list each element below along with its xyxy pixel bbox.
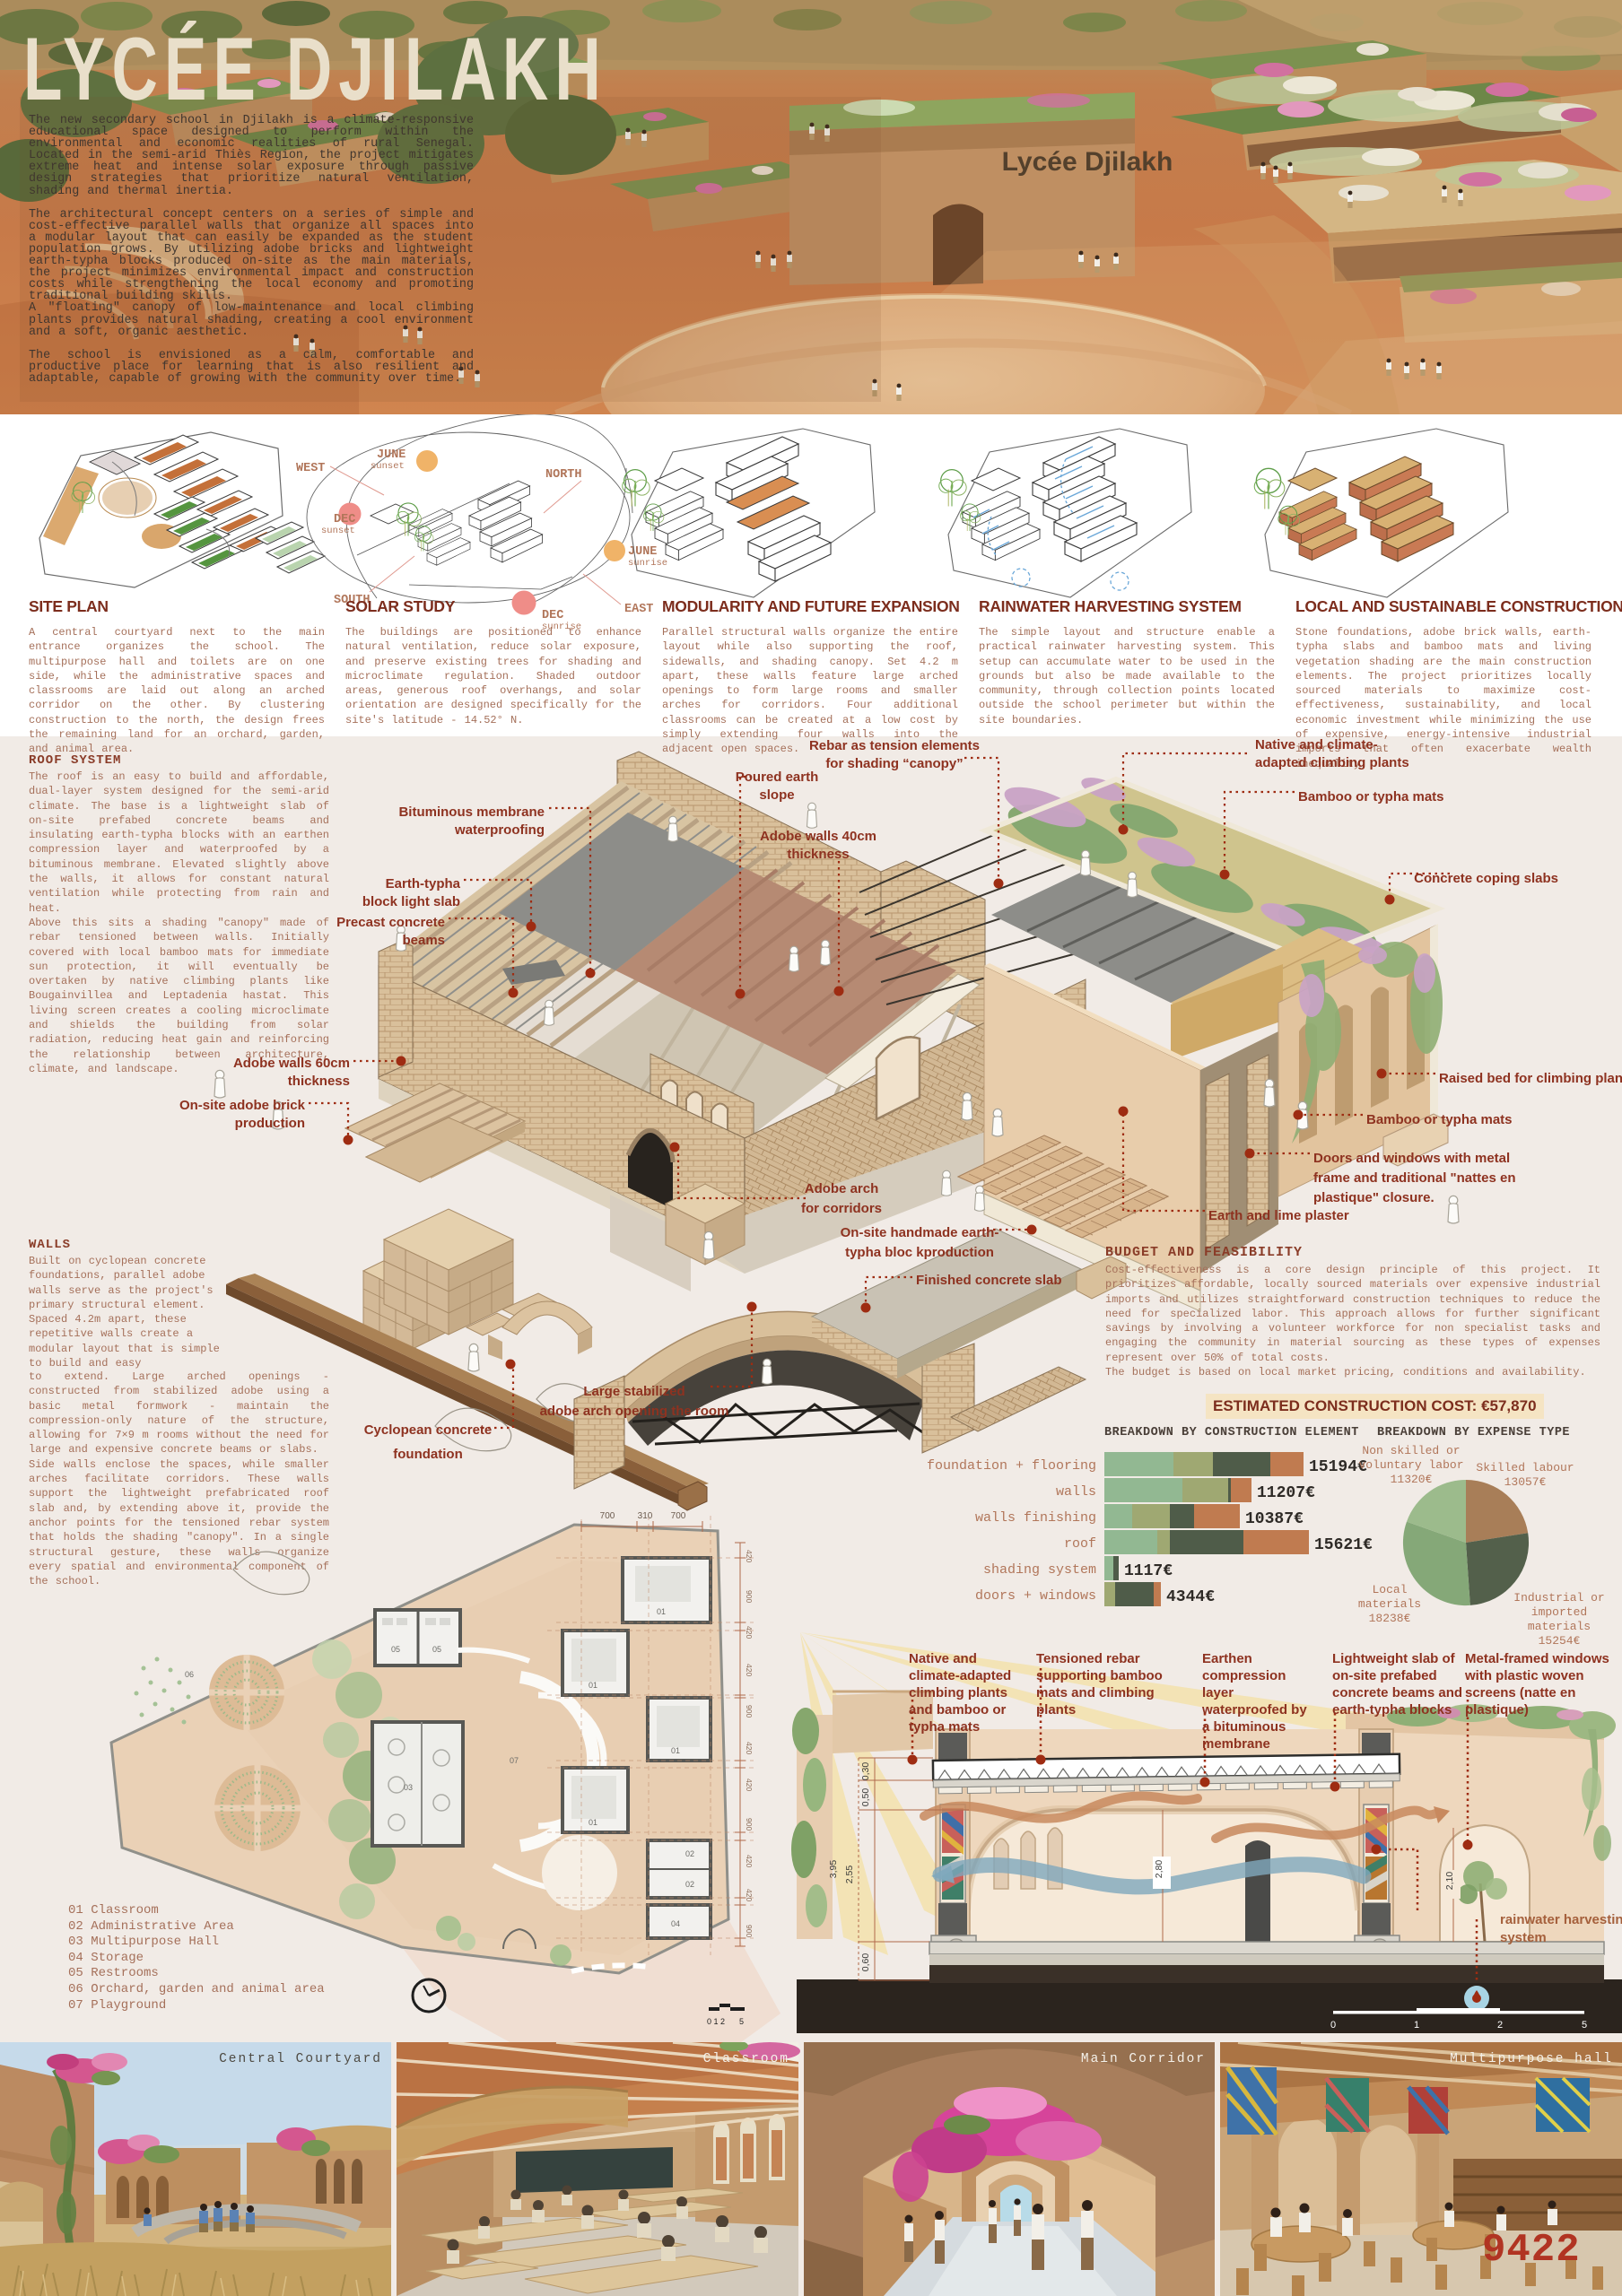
svg-text:03: 03 (404, 1783, 413, 1792)
svg-text:Poured earth: Poured earth (736, 770, 819, 785)
svg-text:NORTH: NORTH (545, 468, 582, 482)
svg-text:Lycée Djilakh: Lycée Djilakh (1002, 147, 1173, 177)
svg-text:WEST: WEST (296, 462, 325, 475)
svg-text:5: 5 (739, 2017, 744, 2026)
svg-text:thickness: thickness (288, 1074, 350, 1089)
svg-text:adobe arch opening the room: adobe arch opening the room (540, 1404, 729, 1419)
svg-text:420: 420 (745, 1626, 754, 1639)
svg-text:2,55: 2,55 (844, 1865, 855, 1884)
svg-text:0 1 2: 0 1 2 (707, 2017, 725, 2026)
svg-text:adapted climbing plants: adapted climbing plants (1255, 755, 1409, 770)
svg-text:sunset: sunset (321, 526, 355, 536)
svg-text:05: 05 (432, 1645, 441, 1654)
svg-text:Raised bed for climbing plants: Raised bed for climbing plants (1439, 1071, 1622, 1086)
svg-text:JUNE: JUNE (628, 545, 657, 559)
svg-text:420: 420 (745, 1664, 754, 1676)
svg-text:01: 01 (671, 1746, 680, 1755)
svg-text:EAST: EAST (624, 603, 653, 616)
svg-text:sunrise: sunrise (628, 558, 667, 569)
svg-text:waterproofing: waterproofing (454, 822, 545, 838)
svg-text:Cyclopean concrete: Cyclopean concrete (364, 1422, 493, 1438)
svg-text:04: 04 (671, 1919, 680, 1928)
svg-text:900: 900 (745, 1705, 754, 1718)
svg-text:Bituminous membrane: Bituminous membrane (398, 804, 545, 820)
svg-text:06: 06 (185, 1670, 194, 1679)
svg-text:900: 900 (745, 1590, 754, 1603)
svg-text:3,95: 3,95 (828, 1860, 839, 1879)
svg-text:Multipurpose hall: Multipurpose hall (1450, 2052, 1613, 2066)
svg-text:2: 2 (1497, 2020, 1503, 2031)
svg-text:beams: beams (402, 933, 445, 948)
svg-text:700: 700 (671, 1511, 686, 1521)
svg-text:for corridors: for corridors (801, 1201, 882, 1216)
svg-text:DEC: DEC (542, 609, 563, 622)
svg-text:Rebar as tension elements: Rebar as tension elements (809, 738, 980, 753)
svg-text:420: 420 (745, 1742, 754, 1754)
svg-text:slope: slope (759, 787, 794, 803)
svg-text:01: 01 (589, 1681, 597, 1690)
svg-text:01: 01 (589, 1818, 597, 1827)
svg-text:Concrete coping slabs: Concrete coping slabs (1414, 871, 1558, 886)
svg-text:700: 700 (600, 1511, 615, 1521)
svg-text:Doors and windows with metal: Doors and windows with metal (1313, 1151, 1510, 1166)
svg-text:0: 0 (1330, 2020, 1336, 2031)
svg-text:310: 310 (638, 1511, 653, 1521)
svg-text:01: 01 (657, 1607, 666, 1616)
svg-text:Adobe arch: Adobe arch (805, 1181, 879, 1196)
svg-text:frame and traditional "nattes: frame and traditional "nattes en (1313, 1170, 1516, 1186)
svg-text:0,50: 0,50 (860, 1788, 871, 1807)
svg-text:900: 900 (745, 1818, 754, 1831)
svg-text:Bamboo or typha mats: Bamboo or typha mats (1298, 789, 1444, 804)
svg-text:for shading “canopy”: for shading “canopy” (825, 756, 963, 771)
svg-text:DEC: DEC (334, 513, 355, 526)
svg-text:Main Corridor: Main Corridor (1081, 2052, 1206, 2066)
svg-text:thickness: thickness (787, 847, 849, 862)
svg-text:1: 1 (1414, 2020, 1419, 2031)
svg-text:420: 420 (745, 1855, 754, 1867)
svg-text:900: 900 (745, 1925, 754, 1937)
svg-text:production: production (235, 1116, 305, 1131)
svg-text:On-site handmade earth-: On-site handmade earth- (841, 1225, 999, 1240)
svg-text:0,30: 0,30 (860, 1762, 871, 1781)
svg-text:5: 5 (1582, 2020, 1587, 2031)
svg-text:420: 420 (745, 1889, 754, 1901)
svg-text:2,80: 2,80 (1154, 1860, 1164, 1879)
svg-text:Native and climate-: Native and climate- (1255, 737, 1378, 752)
svg-text:9422: 9422 (1482, 2228, 1581, 2273)
svg-text:plastique" closure.: plastique" closure. (1313, 1190, 1435, 1205)
svg-text:2,10: 2,10 (1444, 1872, 1455, 1891)
svg-text:Large stabilized: Large stabilized (583, 1384, 685, 1399)
svg-text:sunset: sunset (371, 461, 405, 472)
svg-text:rainwater harvesting: rainwater harvesting (1500, 1912, 1622, 1927)
svg-text:420: 420 (745, 1550, 754, 1562)
svg-text:foundation: foundation (393, 1447, 462, 1462)
svg-text:Earth and lime plaster: Earth and lime plaster (1208, 1208, 1349, 1223)
svg-text:Classroom: Classroom (703, 2052, 789, 2066)
svg-text:Adobe walls 60cm: Adobe walls 60cm (233, 1056, 350, 1071)
svg-text:02: 02 (685, 1880, 694, 1889)
svg-text:Bamboo or typha mats: Bamboo or typha mats (1366, 1112, 1513, 1127)
svg-text:block light slab: block light slab (362, 894, 460, 909)
svg-text:07: 07 (510, 1756, 519, 1765)
svg-text:Earth-typha: Earth-typha (386, 876, 461, 891)
svg-text:05: 05 (391, 1645, 400, 1654)
svg-text:materials: materials (1358, 1597, 1421, 1611)
svg-text:Finished concrete slab: Finished concrete slab (916, 1273, 1062, 1288)
svg-text:420: 420 (745, 1779, 754, 1791)
svg-text:0,60: 0,60 (860, 1953, 871, 1972)
svg-text:Central Courtyard: Central Courtyard (219, 2052, 382, 2066)
svg-text:02: 02 (685, 1849, 694, 1858)
svg-text:Adobe walls 40cm: Adobe walls 40cm (760, 829, 876, 844)
svg-text:system: system (1500, 1930, 1547, 1945)
svg-text:JUNE: JUNE (377, 448, 405, 462)
svg-text:typha bloc kproduction: typha bloc kproduction (845, 1245, 994, 1260)
svg-text:Precast concrete: Precast concrete (336, 915, 445, 930)
svg-text:On-site adobe brick: On-site adobe brick (179, 1098, 306, 1113)
